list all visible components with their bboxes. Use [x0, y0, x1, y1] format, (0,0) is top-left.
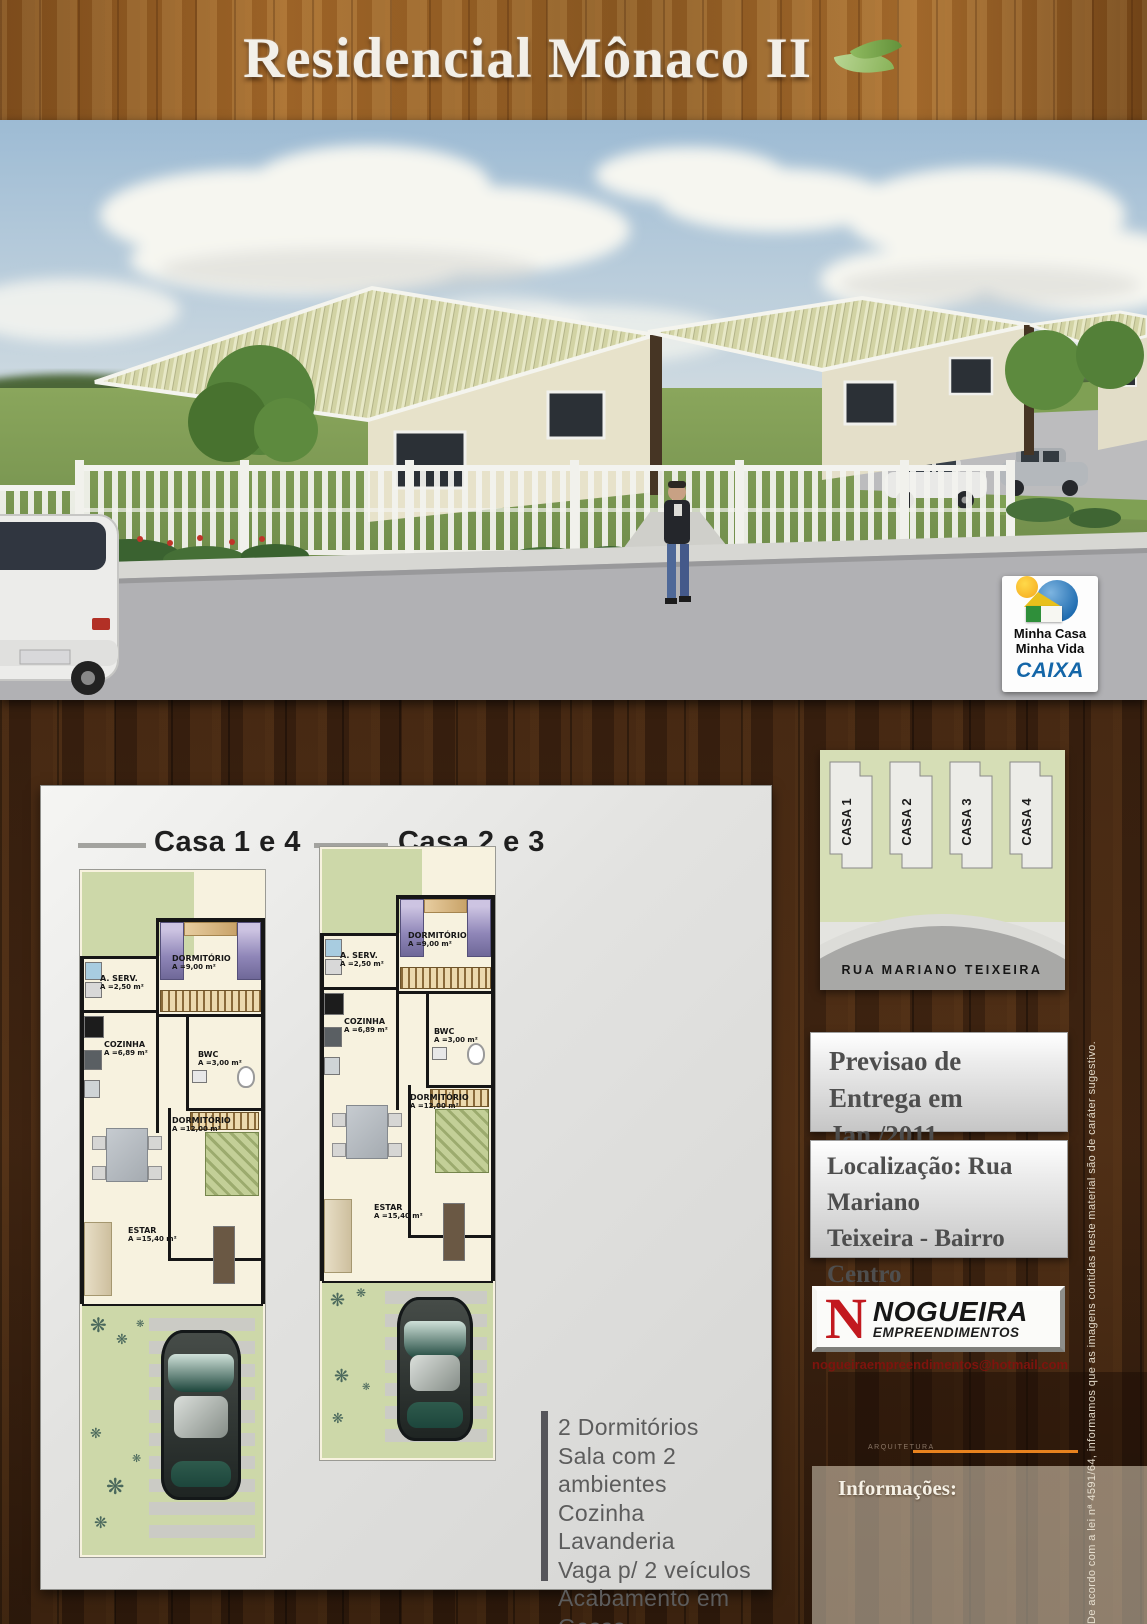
wardrobe: [400, 967, 491, 989]
house-window: [845, 382, 895, 424]
title-row: Residencial Mônaco II: [0, 26, 1147, 91]
fridge: [324, 1027, 342, 1047]
siteplan-map: CASA 1 CASA 2 CASA 3 CASA 4 RUA MARIANO …: [820, 750, 1065, 990]
hero-render: Minha Casa Minha Vida CAIXA: [0, 120, 1147, 700]
header-dash: [78, 843, 146, 848]
car-top-view: [161, 1330, 241, 1500]
informacoes-label: Informações:: [838, 1476, 957, 1501]
sofa: [84, 1222, 112, 1296]
floorplan-casa-1-4: A. SERV.A =2,50 m² DORMITÓRIOA =9,00 m² …: [79, 869, 266, 1558]
plant-icon: ❋: [332, 1411, 344, 1425]
plant-icon: ❋: [90, 1426, 102, 1440]
back-garden: ❋ ❋ ❋ ❋ ❋ ❋ ❋: [82, 1304, 263, 1555]
house-icon: [1024, 592, 1068, 622]
back-garden: ❋ ❋ ❋ ❋ ❋: [322, 1281, 493, 1458]
plant-icon: ❋: [334, 1367, 349, 1385]
room-label-bwc: BWCA =3,00 m²: [198, 1050, 242, 1068]
stove: [84, 1016, 104, 1038]
chair: [92, 1166, 106, 1180]
bathroom-sink: [192, 1070, 207, 1083]
headboard: [424, 899, 467, 913]
casa-label: CASA 1: [839, 798, 854, 845]
plant-icon: ❋: [116, 1332, 128, 1346]
features-bar: [541, 1411, 548, 1581]
hero-illustration: [0, 120, 1147, 700]
car-top-view: [397, 1297, 473, 1441]
siteplan-card: CASA 1 CASA 2 CASA 3 CASA 4 RUA MARIANO …: [820, 750, 1065, 990]
room-label-cozinha: COZINHAA =6,89 m²: [104, 1040, 148, 1058]
double-bed: [205, 1132, 259, 1196]
legal-disclaimer: De acordo com a lei nª 4591/64, informam…: [1086, 1128, 1104, 1624]
plant-icon: ❋: [356, 1287, 366, 1299]
sink-counter: [324, 1057, 340, 1075]
location-box: Localização: Rua Mariano Teixeira - Bair…: [810, 1140, 1068, 1258]
room-label-cozinha: COZINHAA =6,89 m²: [344, 1017, 388, 1035]
mcmv-line1: Minha Casa: [1002, 626, 1098, 641]
poster-root: Residencial Mônaco II: [0, 0, 1147, 1624]
headboard: [184, 922, 237, 936]
plant-icon: ❋: [94, 1516, 107, 1532]
bathroom-sink: [432, 1047, 447, 1060]
developer-card: N NOGUEIRA EMPREENDIMENTOS: [812, 1286, 1065, 1352]
chair: [148, 1166, 162, 1180]
plant-icon: ❋: [106, 1476, 124, 1498]
toilet: [237, 1066, 255, 1088]
tv-cabinet: [213, 1226, 235, 1284]
room-label-dorm12: DORMITÓRIOA =12,00 m²: [172, 1116, 231, 1134]
chair: [388, 1113, 402, 1127]
house-window: [950, 358, 992, 394]
chair: [332, 1143, 346, 1157]
dining-table: [346, 1105, 388, 1159]
bed: [467, 899, 491, 957]
room-label-bwc: BWCA =3,00 m²: [434, 1027, 478, 1045]
mcmv-art: [1002, 576, 1098, 626]
chair: [332, 1113, 346, 1127]
plant-icon: ❋: [90, 1316, 107, 1336]
rear-window: [171, 1461, 231, 1487]
plant-icon: ❋: [330, 1291, 345, 1309]
tv-cabinet: [443, 1203, 465, 1261]
page-title: Residencial Mônaco II: [243, 26, 812, 91]
house-window: [548, 392, 604, 438]
room-label-aserv: A. SERV.A =2,50 m²: [100, 974, 144, 992]
sink-counter: [84, 1080, 100, 1098]
plan-a-header: Casa 1 e 4: [154, 826, 301, 859]
feature-line: Sala com 2 ambientes: [558, 1442, 773, 1499]
feature-line: Cozinha: [558, 1499, 773, 1528]
casa-label: CASA 4: [1019, 798, 1034, 846]
car-roof: [174, 1396, 228, 1438]
developer-initial: N: [825, 1294, 867, 1343]
windshield: [168, 1354, 234, 1392]
double-bed: [435, 1109, 489, 1173]
fridge: [84, 1050, 102, 1070]
feature-line: Lavanderia: [558, 1527, 773, 1556]
house-body-icon: [1026, 606, 1062, 622]
casa-label: CASA 3: [959, 798, 974, 845]
sofa: [324, 1199, 352, 1273]
location-line2: Teixeira - Bairro Centro: [827, 1221, 1067, 1293]
accent-line: [913, 1450, 1078, 1453]
room-label-aserv: A. SERV.A =2,50 m²: [340, 951, 384, 969]
room-label-dorm9: DORMITÓRIOA =9,00 m²: [408, 931, 467, 949]
feature-line: 2 Dormitórios: [558, 1413, 773, 1442]
feature-line: Vaga p/ 2 veículos: [558, 1556, 773, 1585]
chair: [388, 1143, 402, 1157]
delivery-box: Previsao de Entrega em Jan./2011: [810, 1032, 1068, 1132]
dining-table: [106, 1128, 148, 1182]
toilet: [467, 1043, 485, 1065]
white-car: [0, 515, 118, 695]
developer-name: NOGUEIRA: [873, 1299, 1028, 1325]
wardrobe: [160, 990, 261, 1012]
floorplan-casa-2-3: A. SERV.A =2,50 m² DORMITÓRIOA =9,00 m² …: [319, 846, 496, 1461]
caixa-wordmark: CAIXA: [1002, 659, 1098, 683]
mcmv-line2: Minha Vida: [1002, 641, 1098, 656]
plant-icon: ❋: [136, 1320, 144, 1330]
delivery-line1: Previsao de: [829, 1043, 1067, 1080]
room-label-dorm9: DORMITÓRIOA =9,00 m²: [172, 954, 231, 972]
developer-email: nogueiraempreendimentos@hotmail.com: [812, 1357, 1065, 1372]
room-label-estar: ESTARA =15,40 m²: [128, 1226, 177, 1244]
feature-line: Acabamento em Gesso: [558, 1584, 773, 1624]
chair: [92, 1136, 106, 1150]
developer-subtitle: EMPREENDIMENTOS: [873, 1325, 1028, 1340]
plant-icon: ❋: [362, 1383, 370, 1393]
street-label: RUA MARIANO TEIXEIRA: [842, 963, 1043, 977]
features-list: 2 Dormitórios Sala com 2 ambientes Cozin…: [558, 1413, 773, 1624]
room-label-dorm12: DORMITÓRIOA =12,00 m²: [410, 1093, 469, 1111]
chair: [148, 1136, 162, 1150]
rear-window: [407, 1402, 463, 1428]
bed: [237, 922, 261, 980]
house-roof-icon: [1024, 592, 1062, 607]
location-line1: Localização: Rua Mariano: [827, 1149, 1067, 1221]
car-roof: [410, 1355, 460, 1391]
leaf-icon: [830, 36, 904, 82]
room-label-estar: ESTARA =15,40 m²: [374, 1203, 423, 1221]
stove: [324, 993, 344, 1015]
site-road-arc: [820, 920, 1065, 990]
windshield: [404, 1321, 466, 1359]
plant-icon: ❋: [132, 1454, 141, 1465]
casa-label: CASA 2: [899, 798, 914, 845]
mcmv-caixa-card: Minha Casa Minha Vida CAIXA: [1002, 576, 1098, 692]
